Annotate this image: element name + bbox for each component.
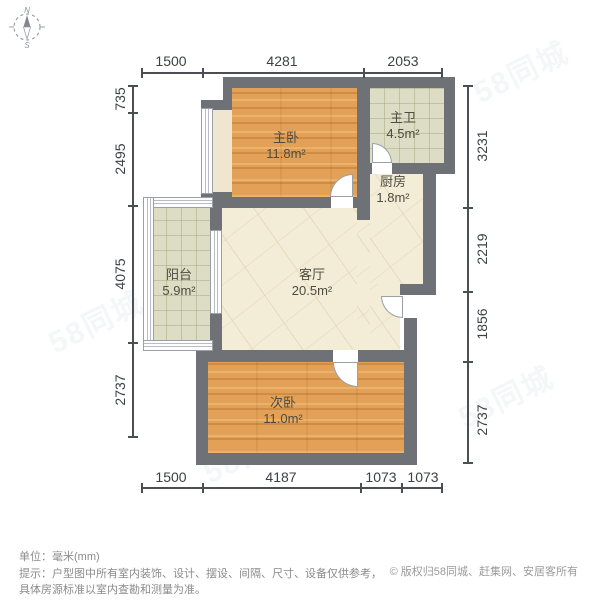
unit-note: 单位：毫米(mm) xyxy=(19,548,100,564)
room-area: 5.9m² xyxy=(162,283,195,299)
dimension-value: 1073 xyxy=(407,469,438,485)
master-bedroom-bay-floor xyxy=(213,108,232,192)
balcony-window xyxy=(143,197,154,351)
room-area: 20.5m² xyxy=(292,283,332,299)
room-name: 厨房 xyxy=(376,174,409,190)
door-opening xyxy=(372,163,392,174)
dimension-value: 1073 xyxy=(365,469,396,485)
wall xyxy=(423,174,436,295)
door-opening xyxy=(333,350,358,362)
balcony-sliding-door xyxy=(210,230,222,314)
second-bedroom-floor xyxy=(208,362,404,453)
dimension-line-right xyxy=(467,85,469,464)
watermark-text: 58同城 xyxy=(465,28,575,112)
dimension-line-top xyxy=(141,72,443,74)
living-room-floor xyxy=(222,208,357,352)
compass-icon: N S xyxy=(4,4,50,50)
room-name: 主卧 xyxy=(266,130,306,146)
room-name: 阳台 xyxy=(162,267,195,283)
wall xyxy=(400,284,436,295)
room-label-balcony: 阳台 5.9m² xyxy=(162,267,195,299)
wall xyxy=(358,350,404,362)
floorplan-canvas: N S 58同城 58同城 58同城 58同城 58同城 xyxy=(0,0,600,600)
dimension-value: 735 xyxy=(112,87,128,110)
dimension-value: 1856 xyxy=(474,308,490,339)
dimension-value: 2219 xyxy=(474,233,490,264)
dimension-value: 4075 xyxy=(112,258,128,289)
room-label-second-bedroom: 次卧 11.0m² xyxy=(263,395,303,427)
dimension-value: 3231 xyxy=(474,130,490,161)
room-label-kitchen: 厨房 1.8m² xyxy=(376,174,409,206)
wall xyxy=(404,340,417,465)
room-name: 客厅 xyxy=(292,267,332,283)
dimension-value: 2737 xyxy=(474,404,490,435)
balcony-window xyxy=(143,340,213,351)
wall xyxy=(208,350,333,362)
room-name: 次卧 xyxy=(263,395,303,411)
dimension-value: 2495 xyxy=(112,143,128,174)
room-label-master-bedroom: 主卧 11.8m² xyxy=(266,130,306,162)
living-room-floor xyxy=(357,220,370,352)
room-area: 4.5m² xyxy=(386,126,419,142)
hint-line2: 具体房源标准以室内查勘和测量为准。 xyxy=(19,581,206,597)
hint-line1: 提示：户型图中所有室内装饰、设计、摆设、间隔、尺寸、设备仅供参考， xyxy=(19,565,382,581)
dimension-value: 1500 xyxy=(155,469,186,485)
dimension-line-bottom xyxy=(141,487,443,489)
wall xyxy=(196,453,417,465)
compass-needle-north xyxy=(24,15,31,27)
compass-needle-south xyxy=(24,27,31,39)
room-name: 主卫 xyxy=(386,110,419,126)
room-label-master-bath: 主卫 4.5m² xyxy=(386,110,419,142)
dimension-line-left xyxy=(132,85,134,438)
compass-south-label: S xyxy=(24,41,30,50)
wall xyxy=(353,197,370,208)
dimension-value: 2053 xyxy=(387,53,418,69)
window xyxy=(201,108,213,194)
dimension-value: 4187 xyxy=(265,469,296,485)
wall xyxy=(223,77,455,88)
room-area: 1.8m² xyxy=(376,190,409,206)
living-room-floor xyxy=(370,284,400,352)
wall xyxy=(444,77,455,174)
wall xyxy=(203,197,331,208)
room-label-living-room: 客厅 20.5m² xyxy=(292,267,332,299)
compass-north-label: N xyxy=(24,6,30,15)
door-opening xyxy=(331,197,353,208)
room-area: 11.8m² xyxy=(266,146,306,162)
dimension-value: 2737 xyxy=(112,374,128,405)
dimension-value: 1500 xyxy=(155,53,186,69)
dimension-value: 4281 xyxy=(266,53,297,69)
entry-door-opening xyxy=(404,295,417,318)
copyright-notice: © 版权归58同城、赶集网、安居客所有 xyxy=(390,563,578,579)
wall xyxy=(196,345,208,465)
room-area: 11.0m² xyxy=(263,411,303,427)
